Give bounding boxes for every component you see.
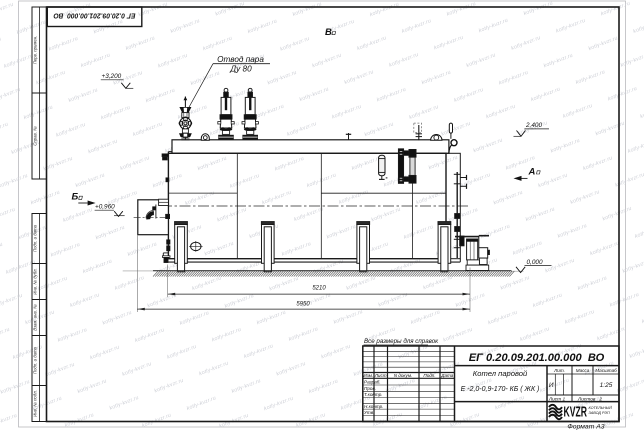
- svg-text:kotly-kvzr.ru: kotly-kvzr.ru: [633, 18, 644, 35]
- svg-text:kotly-kvzr.ru: kotly-kvzr.ru: [634, 223, 644, 240]
- svg-text:0,000: 0,000: [527, 259, 543, 266]
- svg-text:ЕГ 0.20.09.201.00.000 ВО: ЕГ 0.20.09.201.00.000 ВО: [53, 12, 135, 21]
- svg-text:Лит.: Лит.: [553, 368, 565, 373]
- svg-text:Н.контр.: Н.контр.: [364, 404, 383, 409]
- svg-text:Формат А3: Формат А3: [567, 423, 604, 430]
- svg-text:kotly-kvzr.ru: kotly-kvzr.ru: [0, 2, 15, 19]
- svg-text:Б: Б: [72, 192, 79, 203]
- svg-text:ЕГ 0.20.09.201.00.000 ВО: ЕГ 0.20.09.201.00.000 ВО: [469, 352, 605, 364]
- svg-text:Т.контр.: Т.контр.: [364, 392, 383, 397]
- svg-text:5950: 5950: [296, 302, 310, 308]
- svg-text:Подп. и дата: Подп. и дата: [33, 224, 38, 252]
- svg-text:Пров.: Пров.: [364, 386, 376, 391]
- svg-text:kotly-kvzr.ru: kotly-kvzr.ru: [627, 138, 644, 155]
- svg-text:Масштаб: Масштаб: [595, 368, 617, 373]
- svg-text:N докум.: N докум.: [394, 373, 413, 378]
- svg-text:Взам. инв. №: Взам. инв. №: [33, 304, 38, 331]
- svg-text:Е -2,0-0,9-170- КБ ( ЖК ): Е -2,0-0,9-170- КБ ( ЖК ): [461, 386, 540, 393]
- svg-text:Перв. примен.: Перв. примен.: [33, 36, 38, 65]
- svg-text:Дата: Дата: [440, 373, 454, 378]
- svg-text:kotly-kvzr.ru: kotly-kvzr.ru: [639, 103, 644, 120]
- svg-text:Инв. № подл.: Инв. № подл.: [33, 390, 38, 417]
- svg-text:Разраб.: Разраб.: [364, 380, 381, 385]
- svg-text:+3,200: +3,200: [102, 73, 122, 80]
- svg-text:Утв.: Утв.: [364, 410, 374, 415]
- svg-text:Лист: Лист: [374, 373, 387, 378]
- svg-text:kotly-kvzr.ru: kotly-kvzr.ru: [0, 327, 11, 344]
- svg-text:Подп. и дата: Подп. и дата: [33, 346, 38, 374]
- svg-text:И: И: [549, 382, 554, 389]
- svg-text:Инв. № дубл.: Инв. № дубл.: [33, 268, 38, 294]
- svg-text:kotly-kvzr.ru: kotly-kvzr.ru: [0, 413, 18, 430]
- svg-text:Изм.: Изм.: [363, 373, 373, 378]
- svg-text:+0,960: +0,960: [95, 204, 115, 211]
- svg-text:kotly-kvzr.ru: kotly-kvzr.ru: [0, 122, 9, 139]
- svg-text:kotly-kvzr.ru: kotly-kvzr.ru: [0, 207, 16, 224]
- svg-text:kotly-kvzr.ru: kotly-kvzr.ru: [629, 343, 644, 360]
- svg-text:Лист 1: Лист 1: [548, 396, 566, 402]
- svg-text:Ду 80: Ду 80: [229, 64, 252, 73]
- svg-text:Котел паровой: Котел паровой: [473, 369, 528, 378]
- svg-text:kotly-kvzr.ru: kotly-kvzr.ru: [0, 241, 4, 258]
- svg-text:Справ. №: Справ. №: [33, 126, 38, 146]
- svg-text:2,400: 2,400: [525, 122, 542, 129]
- svg-text:Подп.: Подп.: [423, 373, 435, 378]
- svg-text:kotly-kvzr.ru: kotly-kvzr.ru: [337, 0, 368, 1]
- svg-text:Листов 2: Листов 2: [577, 396, 602, 402]
- svg-text:5210: 5210: [312, 285, 326, 291]
- svg-text:ЗАВОД РЭП: ЗАВОД РЭП: [589, 411, 610, 415]
- svg-text:1:25: 1:25: [600, 382, 613, 389]
- svg-text:Все размеры для справок: Все размеры для справок: [364, 338, 439, 345]
- svg-text:КОТЕЛЬНЫЙ: КОТЕЛЬНЫЙ: [589, 406, 613, 410]
- svg-text:Масса: Масса: [576, 368, 590, 373]
- svg-text:В: В: [325, 27, 332, 38]
- svg-text:А: А: [528, 167, 536, 178]
- svg-text:KVZR: KVZR: [564, 404, 588, 421]
- svg-text:Отвод пара: Отвод пара: [217, 55, 264, 64]
- svg-text:kotly-kvzr.ru: kotly-kvzr.ru: [0, 36, 2, 53]
